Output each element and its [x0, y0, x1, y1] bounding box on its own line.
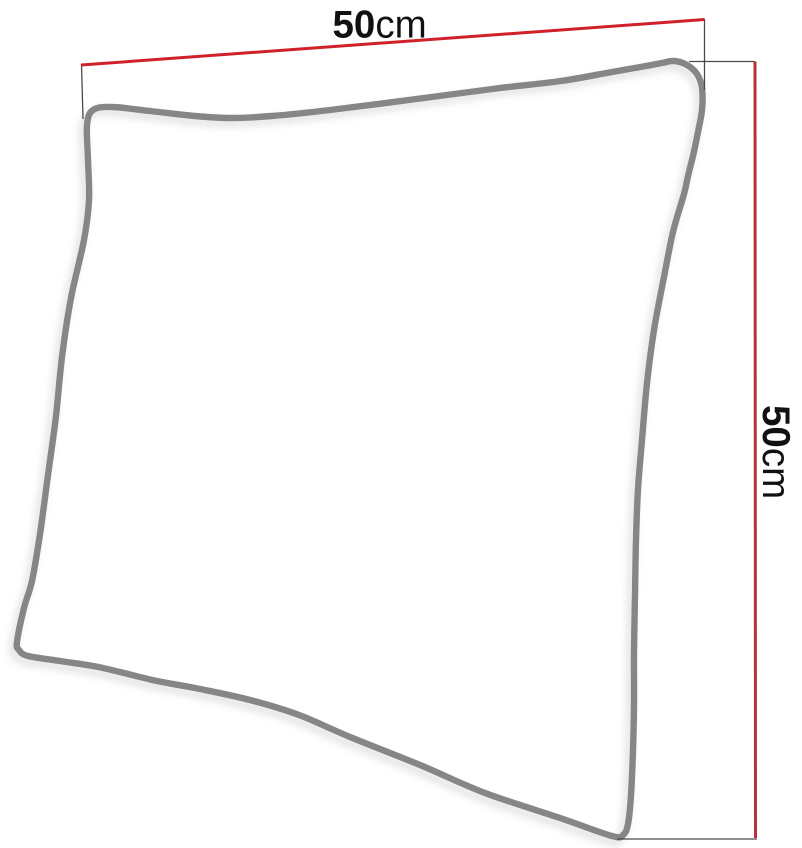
- svg-text:50cm: 50cm: [333, 4, 427, 47]
- svg-text:50cm: 50cm: [754, 405, 797, 499]
